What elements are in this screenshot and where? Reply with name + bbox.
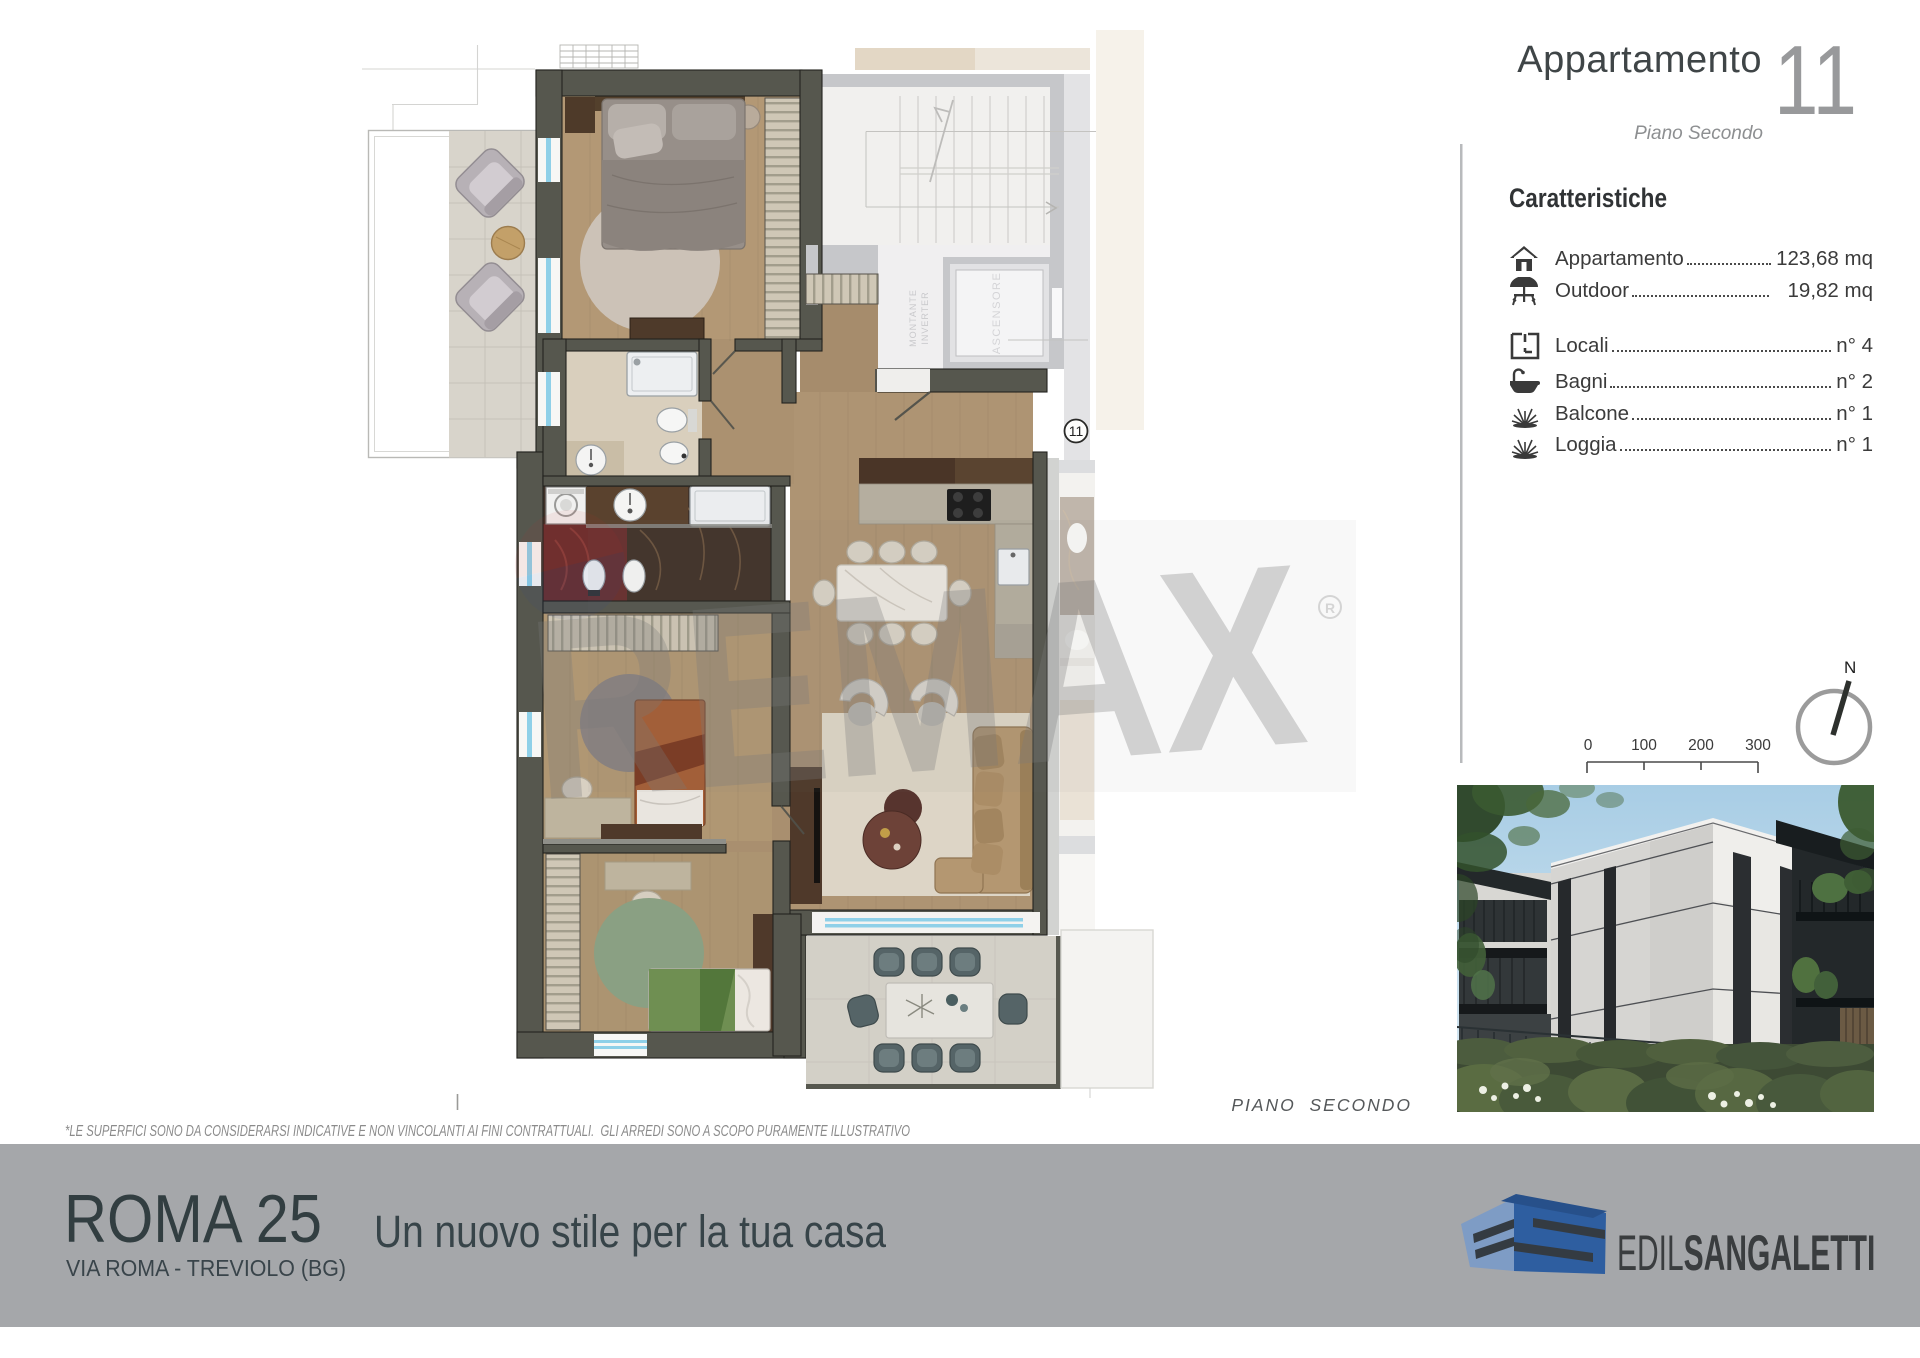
svg-text:ASCENSORE: ASCENSORE: [991, 272, 1003, 355]
svg-text:INVERTER: INVERTER: [920, 291, 930, 344]
svg-text:REMAX: REMAX: [519, 508, 1315, 854]
svg-text:Appartamento: Appartamento: [1517, 39, 1762, 81]
svg-text:0: 0: [1584, 737, 1593, 754]
svg-text:MONTANTE: MONTANTE: [908, 289, 918, 347]
svg-text:200: 200: [1688, 737, 1714, 754]
svg-text:100: 100: [1631, 737, 1657, 754]
svg-text:VIA ROMA - TREVIOLO (BG): VIA ROMA - TREVIOLO (BG): [66, 1255, 346, 1281]
svg-text:N: N: [1844, 658, 1856, 677]
svg-text:11: 11: [1774, 25, 1857, 135]
svg-text:Un nuovo stile per la tua casa: Un nuovo stile per la tua casa: [374, 1206, 887, 1257]
svg-text:Piano Secondo: Piano Secondo: [1634, 123, 1763, 144]
svg-text:PIANO SECONDO: PIANO SECONDO: [1231, 1095, 1412, 1115]
svg-text:300: 300: [1745, 737, 1771, 754]
svg-text:R: R: [1325, 600, 1335, 616]
svg-text:11: 11: [1069, 423, 1084, 439]
svg-text:*LE SUPERFICI SONO DA CONSIDER: *LE SUPERFICI SONO DA CONSIDERARSI INDIC…: [65, 1123, 910, 1140]
svg-text:Caratteristiche: Caratteristiche: [1509, 183, 1667, 213]
svg-text:ROMA 25: ROMA 25: [64, 1181, 322, 1257]
svg-text:EDILSANGALETTI: EDILSANGALETTI: [1617, 1225, 1875, 1281]
